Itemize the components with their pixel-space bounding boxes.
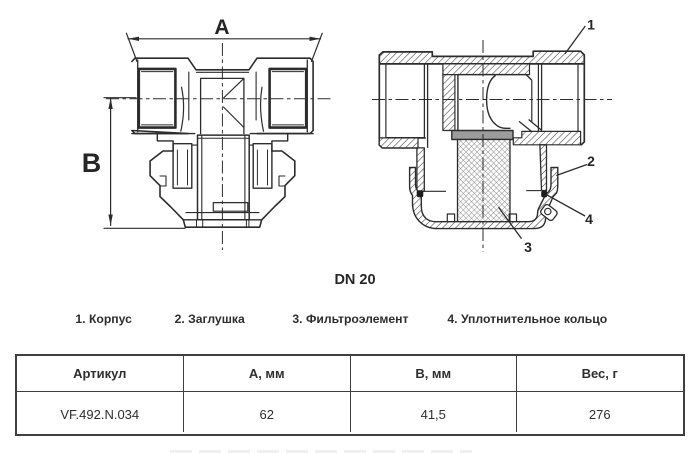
svg-text:1: 1: [587, 17, 595, 33]
svg-text:2: 2: [587, 153, 595, 169]
svg-text:4: 4: [585, 211, 593, 227]
svg-text:3: 3: [524, 239, 532, 255]
svg-text:B: B: [82, 148, 102, 178]
svg-text:A: A: [214, 16, 229, 39]
svg-text:DN 20: DN 20: [334, 272, 375, 288]
